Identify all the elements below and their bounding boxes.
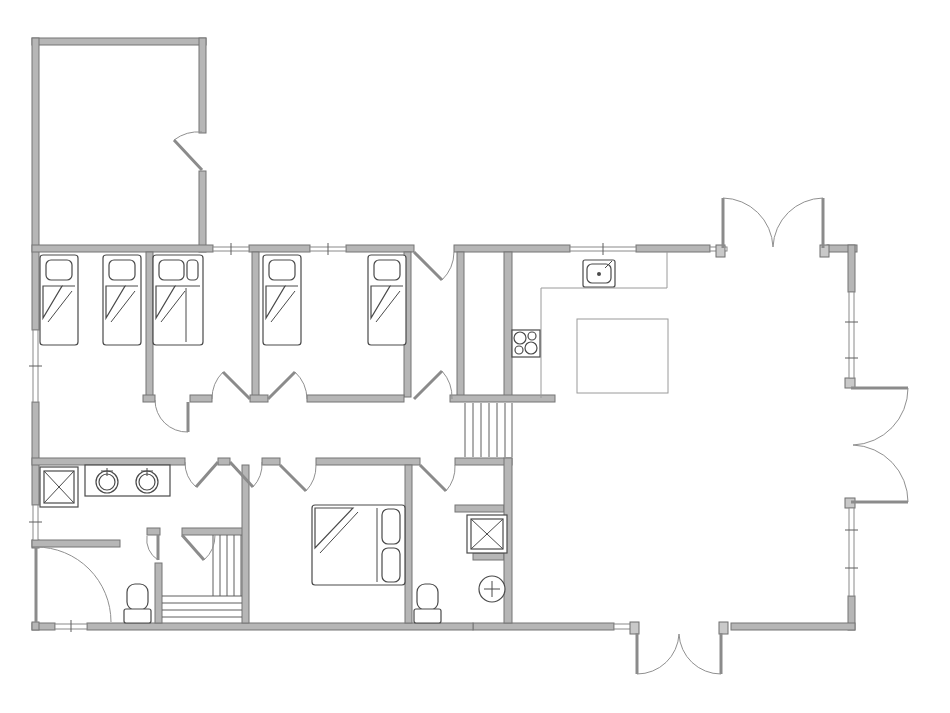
bedroom-b-door-arc — [212, 372, 223, 399]
back-door-arc — [442, 252, 454, 280]
stair-inner-door-leaf — [182, 535, 204, 560]
bedroom-a-door-arc — [155, 400, 188, 432]
bedroom-b-door-leaf — [223, 372, 250, 399]
hall-south-wall-1 — [32, 458, 185, 465]
wc-cell-south-wall — [473, 553, 504, 560]
window-south-mid — [614, 624, 632, 629]
wc-door-leaf — [420, 465, 446, 491]
hall-north-wall-3 — [250, 395, 268, 402]
bedroom-c-door-arc — [295, 372, 307, 399]
patio-door-south-arc-left — [637, 634, 679, 674]
north-wall-kitchen-2 — [636, 245, 710, 252]
south-wall-right — [731, 623, 855, 630]
patio-door-north-arc-right — [773, 198, 823, 247]
master-bed-pillow-2 — [382, 548, 400, 582]
wc-door-arc — [446, 465, 455, 491]
north-wall-bedrooms-2 — [249, 245, 310, 252]
master-door-arc — [306, 465, 316, 491]
stair-lower-door-arc — [147, 536, 158, 560]
bathroom-door-arc — [185, 462, 196, 487]
west-wall-upper — [32, 38, 39, 330]
stair-room-north-wall-1 — [147, 528, 160, 535]
window-east-upper — [849, 292, 854, 378]
north-wall-kitchen-1 — [454, 245, 570, 252]
front-door-arc — [36, 547, 111, 622]
stair-room-north-wall-2 — [182, 528, 248, 535]
toilet-wc-bowl — [417, 584, 438, 610]
vanity-sink-2-inner — [139, 474, 155, 490]
wc-cell-north-wall — [455, 505, 504, 512]
stair-room-door-arc — [253, 462, 262, 487]
kitchen-sink-drain — [597, 272, 601, 276]
hall-north-wall-5 — [450, 395, 555, 402]
vanity-sink-1-inner — [99, 474, 115, 490]
bedroom-c-door-leaf — [268, 372, 295, 399]
master-door-leaf — [280, 465, 306, 491]
bathroom-door-leaf — [196, 462, 218, 487]
garage-wall-right-upper — [199, 38, 206, 133]
vestibule-door-leaf — [414, 371, 442, 399]
floor-plan-canvas — [0, 0, 950, 713]
hall-south-wall-3 — [262, 458, 280, 465]
north-wall-bedrooms-1 — [32, 245, 213, 252]
garage-wall-top — [32, 38, 206, 45]
hall-north-wall-1 — [143, 395, 155, 402]
toilet-wc-tank — [414, 609, 441, 623]
bedroom-divider-ab — [146, 252, 153, 397]
back-door-leaf — [414, 252, 442, 280]
hall-north-wall-2 — [190, 395, 212, 402]
patio-door-north-arc-left — [723, 198, 773, 247]
master-east-wall — [405, 465, 412, 623]
patio-door-south-post-right — [719, 622, 728, 634]
hall-south-wall-2 — [218, 458, 230, 465]
south-wall-left — [87, 623, 473, 630]
garage-door-arc — [174, 132, 202, 140]
bed-3-pillow-2 — [187, 260, 198, 280]
patio-door-south-arc-right — [679, 634, 721, 674]
patio-door-south-post-left — [630, 622, 639, 634]
bedroom-divider-bc — [252, 252, 259, 397]
kitchen-island — [577, 319, 668, 393]
bed-2-pillow — [109, 260, 135, 280]
floor-plan — [0, 0, 950, 713]
garage-wall-right-lower — [199, 171, 206, 252]
stove-burner-3 — [515, 346, 523, 354]
bed-4-pillow — [269, 260, 295, 280]
patio-door-east-arc-bottom — [853, 445, 908, 502]
toilet-entry-tank — [124, 609, 151, 623]
garage-door-leaf — [174, 140, 202, 170]
south-wall-mid — [473, 623, 614, 630]
east-wall-upper — [848, 245, 855, 292]
kitchen-west-wall — [504, 252, 512, 398]
stair-room-west-wall — [155, 563, 162, 623]
patio-door-east-arc-top — [853, 388, 908, 445]
master-west-wall — [242, 465, 249, 623]
west-wall-mid — [32, 402, 39, 505]
stove-burner-4 — [525, 342, 537, 354]
stairs-bottom-wall — [455, 458, 512, 465]
west-wall-bottom-corner — [32, 622, 39, 630]
stove-burner-1 — [514, 332, 526, 344]
hall-north-wall-4 — [307, 395, 404, 402]
bathroom-divider-wall — [32, 540, 120, 547]
bed-5-pillow — [374, 260, 400, 280]
north-wall-bedrooms-3 — [346, 245, 414, 252]
hall-south-wall-4 — [316, 458, 420, 465]
master-bed-pillow-1 — [382, 509, 400, 544]
toilet-entry-bowl — [127, 584, 148, 610]
stove-burner-2 — [528, 332, 536, 340]
window-east-lower — [849, 508, 854, 596]
bed-3-pillow — [159, 260, 184, 280]
bed-1-pillow — [46, 260, 72, 280]
vestibule-east-wall — [457, 252, 464, 397]
